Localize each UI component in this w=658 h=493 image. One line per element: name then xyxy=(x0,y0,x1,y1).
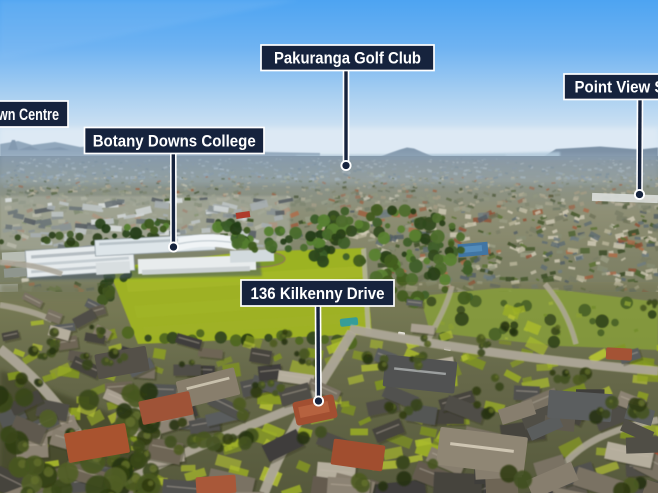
svg-text:Botany Town Centre: Botany Town Centre xyxy=(0,105,59,124)
svg-text:Botany Downs College: Botany Downs College xyxy=(93,132,256,151)
svg-text:136 Kilkenny Drive: 136 Kilkenny Drive xyxy=(251,284,385,303)
svg-text:Pakuranga Golf Club: Pakuranga Golf Club xyxy=(274,49,421,68)
svg-text:Point View School: Point View School xyxy=(575,78,658,97)
